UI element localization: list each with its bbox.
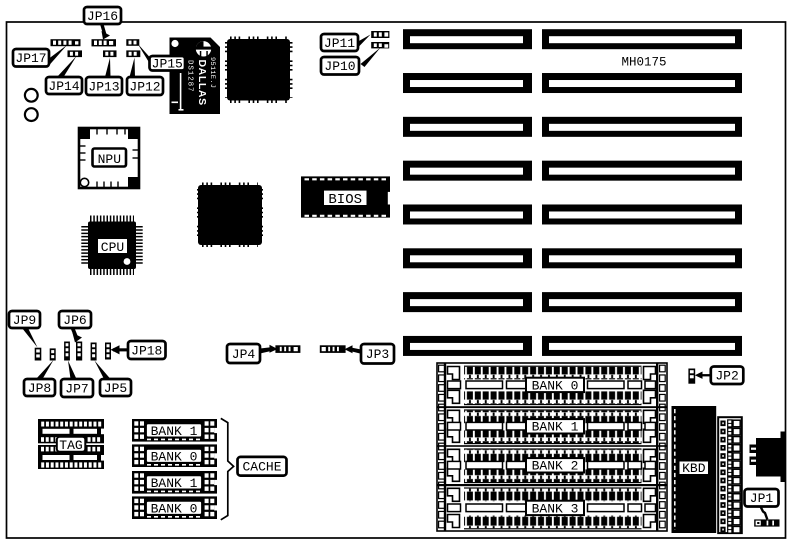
svg-text:BANK 1: BANK 1 bbox=[151, 424, 198, 439]
svg-text:TAG: TAG bbox=[59, 438, 82, 453]
svg-text:BANK 0: BANK 0 bbox=[151, 449, 198, 464]
svg-text:JP7: JP7 bbox=[65, 381, 88, 396]
svg-text:DS1287: DS1287 bbox=[186, 60, 194, 92]
svg-text:BANK 1: BANK 1 bbox=[151, 476, 198, 491]
svg-text:JP9: JP9 bbox=[13, 313, 36, 328]
svg-text:JP16: JP16 bbox=[87, 9, 118, 24]
svg-text:CACHE: CACHE bbox=[242, 460, 281, 475]
svg-text:BANK 3: BANK 3 bbox=[532, 501, 579, 516]
svg-text:MH0175: MH0175 bbox=[621, 56, 666, 70]
svg-text:JP11: JP11 bbox=[324, 36, 355, 51]
svg-text:9511E.J: 9511E.J bbox=[208, 57, 216, 88]
svg-text:JP3: JP3 bbox=[366, 347, 389, 362]
svg-text:JP12: JP12 bbox=[129, 79, 160, 94]
svg-text:CPU: CPU bbox=[101, 240, 124, 255]
svg-text:BANK 0: BANK 0 bbox=[532, 378, 579, 393]
svg-text:NPU: NPU bbox=[98, 152, 121, 167]
svg-text:JP5: JP5 bbox=[104, 381, 127, 396]
svg-text:JP13: JP13 bbox=[88, 79, 119, 94]
svg-text:JP6: JP6 bbox=[63, 313, 86, 328]
svg-text:JP10: JP10 bbox=[324, 59, 355, 74]
svg-text:BANK 2: BANK 2 bbox=[532, 459, 579, 474]
svg-text:BANK 0: BANK 0 bbox=[151, 501, 198, 516]
svg-text:BANK 1: BANK 1 bbox=[532, 420, 579, 435]
svg-text:JP15: JP15 bbox=[152, 57, 183, 72]
svg-text:JP2: JP2 bbox=[715, 369, 738, 384]
svg-text:DALLAS: DALLAS bbox=[196, 60, 208, 106]
svg-text:KBD: KBD bbox=[682, 461, 706, 476]
svg-text:JP4: JP4 bbox=[232, 347, 256, 362]
svg-text:JP17: JP17 bbox=[15, 51, 46, 66]
svg-text:JP14: JP14 bbox=[48, 79, 79, 94]
svg-text:JP8: JP8 bbox=[28, 381, 51, 396]
svg-text:JP1: JP1 bbox=[750, 491, 774, 506]
svg-text:BIOS: BIOS bbox=[328, 192, 362, 208]
svg-text:JP18: JP18 bbox=[131, 343, 162, 358]
